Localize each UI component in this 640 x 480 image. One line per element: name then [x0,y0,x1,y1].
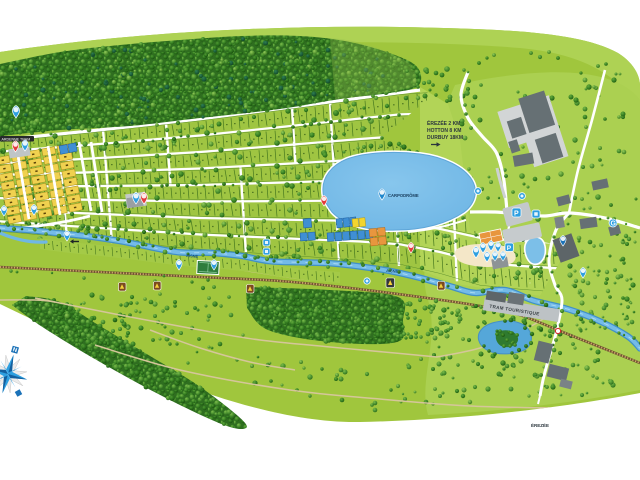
svg-text:P: P [507,245,512,252]
svg-text:CARPODRÔME: CARPODRÔME [388,193,419,198]
svg-text:P: P [514,211,519,218]
svg-text:ÉREZÉE: ÉREZÉE [531,421,549,428]
svg-text:AISNE: AISNE [386,268,399,274]
svg-text:ÉREZÉE 2 KM: ÉREZÉE 2 KM [427,119,460,127]
svg-text:HOTTON 8 KM: HOTTON 8 KM [427,128,461,134]
svg-text:AISNE: AISNE [186,253,199,259]
svg-text:G: G [611,221,617,228]
svg-text:DURBUY 18KM: DURBUY 18KM [427,135,463,141]
